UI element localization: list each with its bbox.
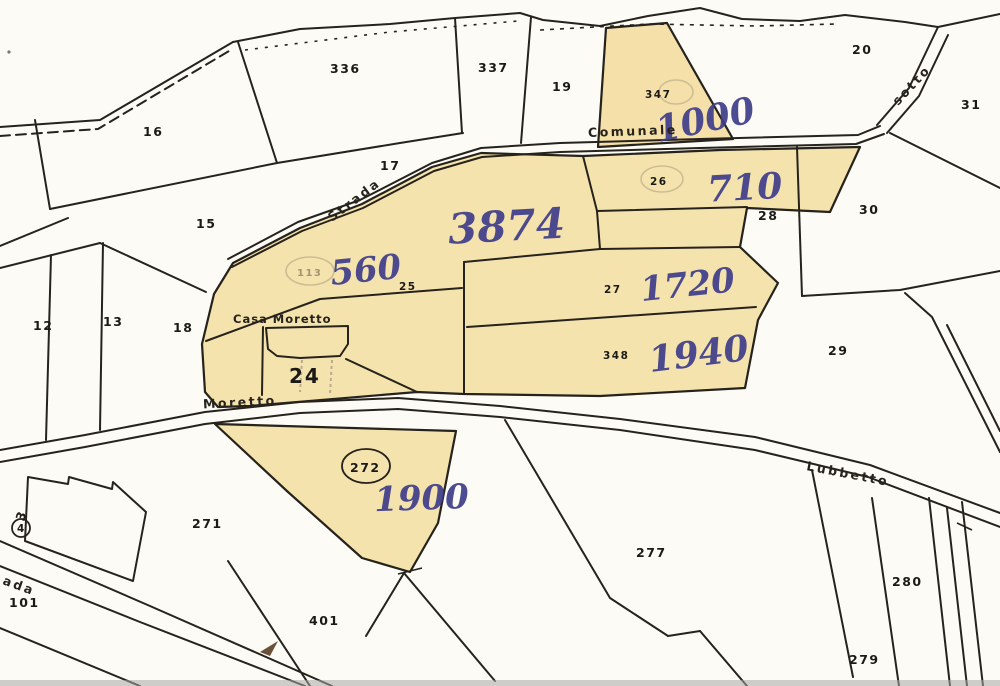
parcel-label-29: 29 [828,343,848,358]
parcel-label-15: 15 [196,216,216,231]
parcel-label-401: 401 [309,613,340,628]
cadastral-map: 336 337 19 347 20 31 16 17 26 28 30 15 2… [0,0,1000,686]
area-value-560: 560 [328,247,403,294]
parcel-label-16: 16 [143,124,163,139]
parcel-label-30: 30 [859,202,879,217]
parcel-label-20: 20 [852,42,872,57]
parcel-label-28: 28 [758,208,778,223]
parcel-label-279: 279 [849,652,880,667]
parcel-label-13: 13 [103,314,123,329]
parcel-label-347: 347 [645,89,671,101]
parcel-label-19: 19 [552,79,572,94]
parcel-label-12: 12 [33,318,53,333]
parcel-label-27: 27 [604,284,622,296]
parcel-label-31: 31 [961,97,981,112]
parcel-label-277: 277 [636,545,667,560]
parcel-label-26: 26 [650,176,668,188]
parcel-label-113: 113 [297,268,322,279]
scanner-edge-strip [0,680,1000,686]
parcel-label-348: 348 [603,350,629,362]
parcel-label-272: 272 [350,460,381,475]
road-label-comunale: Comunale [588,122,678,140]
parcel-label-280: 280 [892,574,923,589]
parcel-label-24: 24 [289,364,321,388]
parcel-label-18: 18 [173,320,193,335]
map-canvas: 336 337 19 347 20 31 16 17 26 28 30 15 2… [0,0,1000,686]
parcel-label-271: 271 [192,516,223,531]
parcel-label-337: 337 [478,60,509,75]
parcel-label-17: 17 [380,158,400,173]
survey-point-label-4: 4 [17,523,26,535]
parcel-label-336: 336 [330,61,361,76]
area-value-3874: 3874 [447,199,566,254]
area-value-1900: 1900 [373,477,469,520]
scan-speck [7,50,10,53]
parcel-label-101: 101 [9,595,40,610]
place-label-casa-moretto: Casa Moretto [233,312,332,326]
area-value-710: 710 [706,165,783,211]
